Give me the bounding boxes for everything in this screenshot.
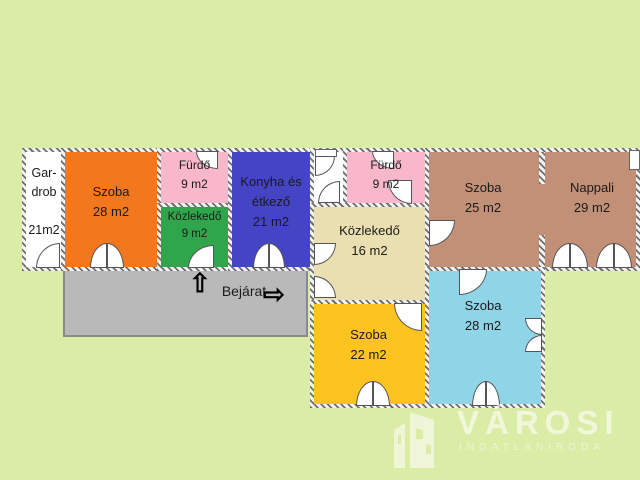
label-szoba-22: Szoba 22 m2 (312, 325, 425, 365)
watermark-subtitle-text: INGATLANIRODA (459, 442, 640, 453)
floor-plan: Gar- drob 21m2 Szoba 28 m2 Fürdő 9 m2 Kö… (0, 0, 640, 480)
label-furdo-1: Fürdő 9 m2 (158, 156, 231, 193)
divider-wall-bottom (539, 235, 545, 267)
label-konyha: Konyha és étkező 21 m2 (229, 172, 313, 232)
agency-watermark: VÁROSI INGATLANIRODA (385, 398, 640, 473)
label-gardrob: Gar- drob 21m2 (23, 164, 65, 240)
label-kozlekedo-9: Közlekedő 9 m2 (158, 209, 231, 244)
entrance-right-arrow-icon: ⇨ (263, 279, 285, 310)
label-szoba-25: Szoba 25 m2 (433, 178, 533, 218)
watermark-brand-text: VÁROSI (457, 404, 640, 442)
label-furdo-2: Fürdő 9 m2 (344, 156, 428, 193)
divider-wall-top (539, 152, 545, 184)
entrance-up-arrow-icon: ⇧ (189, 268, 211, 299)
building-logo-icon (390, 404, 446, 468)
opening-nappali-top-right (629, 150, 640, 170)
label-szoba-28-right: Szoba 28 m2 (428, 296, 538, 336)
label-nappali: Nappali 29 m2 (547, 178, 637, 218)
label-kozlekedo-16: Közlekedő 16 m2 (311, 221, 428, 261)
label-szoba-28-left: Szoba 28 m2 (66, 182, 156, 222)
